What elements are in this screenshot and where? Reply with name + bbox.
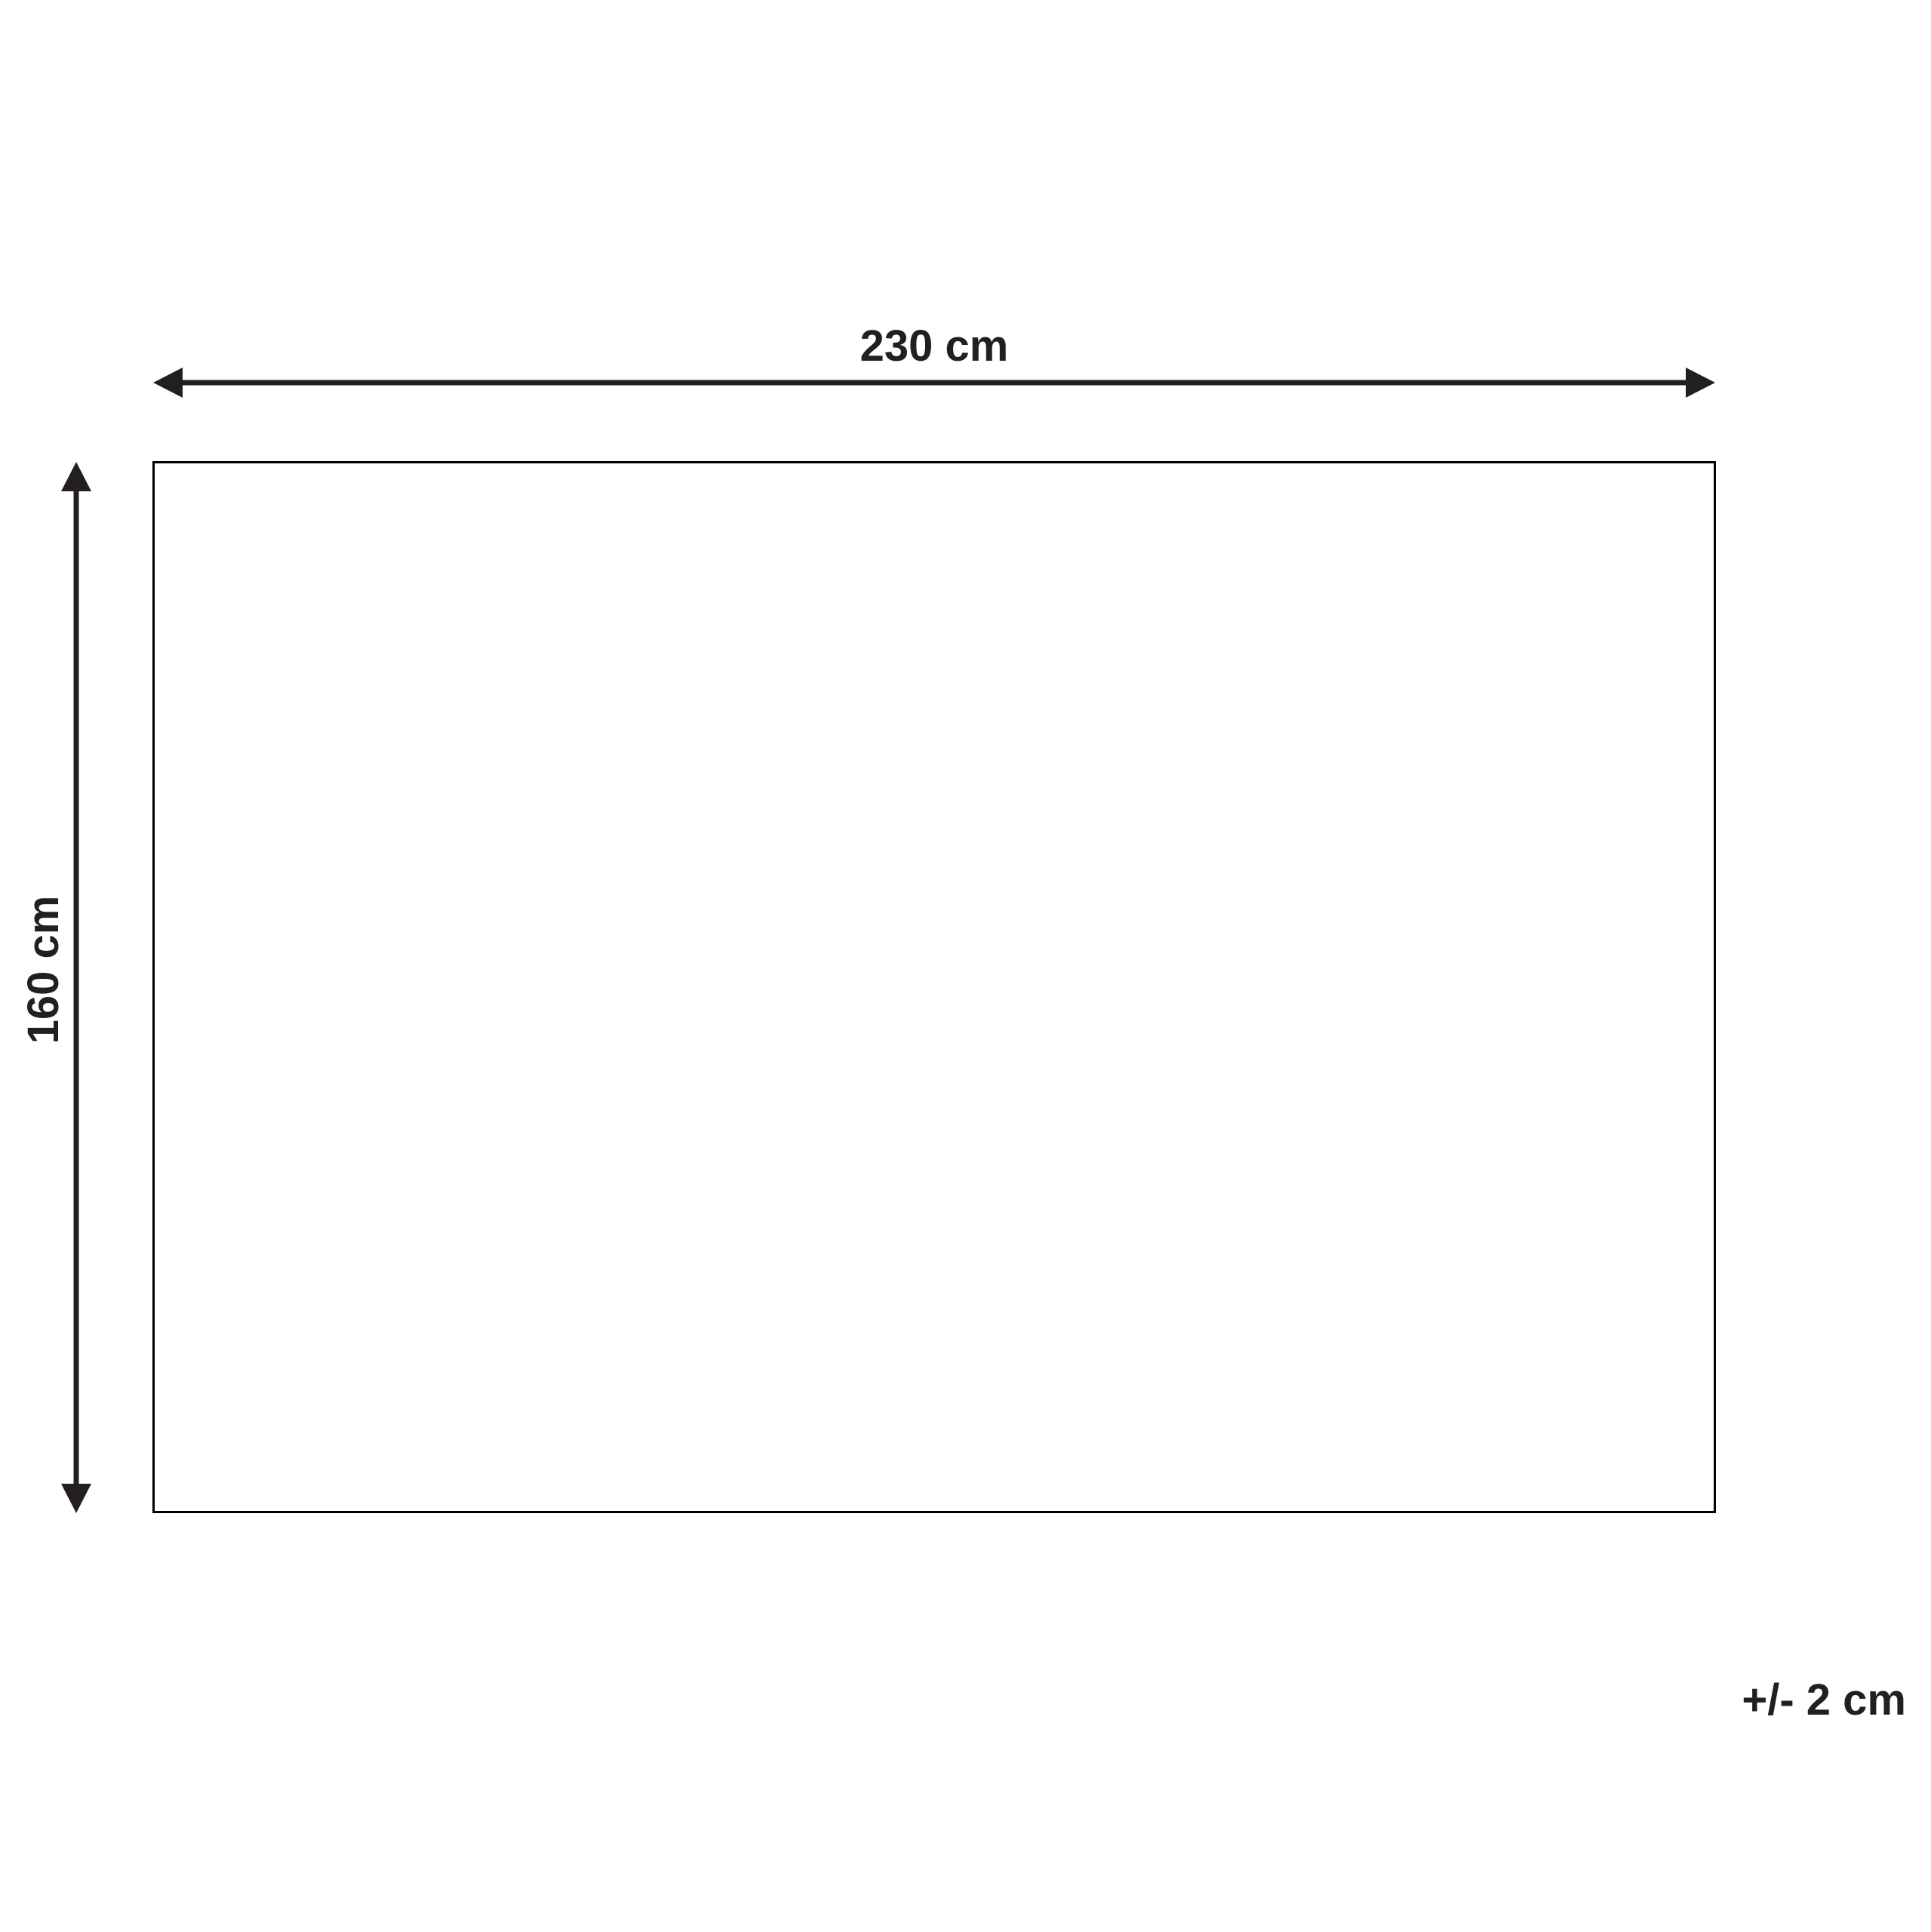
dimension-diagram: 230 cm 160 cm +/- 2 cm (0, 0, 1931, 1932)
product-outline-rectangle (152, 461, 1716, 1513)
height-dimension-label: 160 cm (22, 896, 66, 1044)
tolerance-label: +/- 2 cm (1742, 1678, 1906, 1722)
width-dimension-label: 230 cm (152, 325, 1716, 368)
